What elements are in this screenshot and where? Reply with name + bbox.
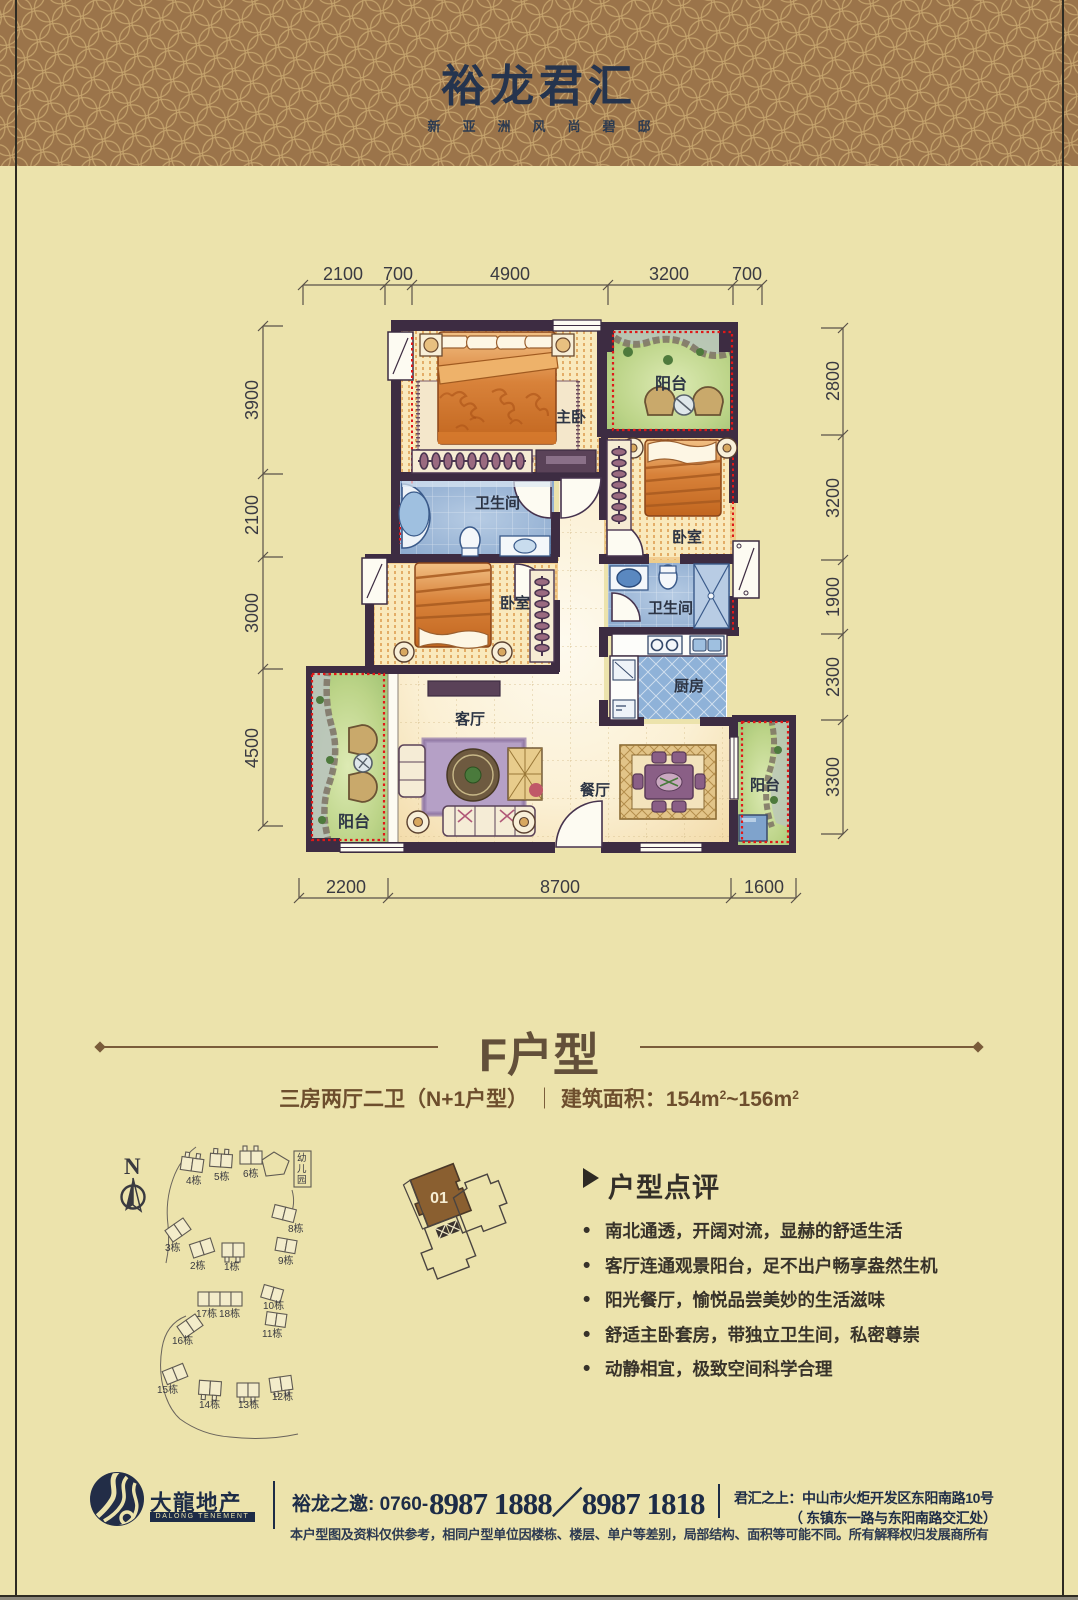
svg-text:6栋: 6栋 <box>243 1167 259 1180</box>
svg-text:12栋: 12栋 <box>272 1390 293 1403</box>
svg-text:2100: 2100 <box>242 495 262 535</box>
svg-text:卫生间: 卫生间 <box>648 599 693 617</box>
svg-text:阳台: 阳台 <box>338 812 370 831</box>
svg-text:2300: 2300 <box>823 657 843 697</box>
svg-text:5栋: 5栋 <box>214 1170 230 1183</box>
svg-text:9栋: 9栋 <box>278 1254 294 1267</box>
svg-text:700: 700 <box>383 264 413 284</box>
svg-text:16栋: 16栋 <box>172 1334 193 1347</box>
svg-text:卧室: 卧室 <box>500 594 530 612</box>
svg-text:儿: 儿 <box>297 1164 307 1175</box>
svg-text:厨房: 厨房 <box>674 677 704 695</box>
svg-text:01: 01 <box>430 1190 448 1207</box>
svg-text:4栋: 4栋 <box>186 1174 202 1187</box>
svg-text:幼: 幼 <box>297 1152 307 1164</box>
svg-text:8栋: 8栋 <box>288 1222 304 1235</box>
svg-text:3栋: 3栋 <box>165 1241 181 1254</box>
svg-text:2栋: 2栋 <box>190 1259 206 1272</box>
svg-text:4500: 4500 <box>242 728 262 768</box>
svg-text:1栋: 1栋 <box>224 1260 240 1273</box>
svg-text:1600: 1600 <box>744 877 784 897</box>
svg-text:园: 园 <box>297 1175 307 1186</box>
svg-text:14栋: 14栋 <box>199 1398 220 1411</box>
svg-text:3200: 3200 <box>823 478 843 518</box>
svg-text:1900: 1900 <box>823 577 843 617</box>
svg-text:主卧: 主卧 <box>556 408 586 426</box>
svg-text:2800: 2800 <box>823 361 843 401</box>
svg-text:3900: 3900 <box>242 380 262 420</box>
svg-text:餐厅: 餐厅 <box>580 781 610 799</box>
svg-text:3000: 3000 <box>242 593 262 633</box>
svg-text:卫生间: 卫生间 <box>475 494 520 512</box>
svg-text:8700: 8700 <box>540 877 580 897</box>
svg-text:N: N <box>124 1154 141 1179</box>
svg-text:2100: 2100 <box>323 264 363 284</box>
svg-text:卧室: 卧室 <box>672 528 702 546</box>
svg-text:3200: 3200 <box>649 264 689 284</box>
svg-text:3300: 3300 <box>823 757 843 797</box>
svg-text:10栋: 10栋 <box>263 1299 284 1312</box>
svg-text:4900: 4900 <box>490 264 530 284</box>
svg-text:阳台: 阳台 <box>655 374 687 393</box>
svg-text:18栋: 18栋 <box>219 1307 240 1320</box>
svg-text:客厅: 客厅 <box>454 710 485 728</box>
svg-text:2200: 2200 <box>326 877 366 897</box>
svg-text:13栋: 13栋 <box>238 1398 259 1411</box>
svg-text:700: 700 <box>732 264 762 284</box>
svg-text:阳台: 阳台 <box>750 776 780 794</box>
svg-text:15栋: 15栋 <box>157 1383 178 1396</box>
svg-text:17栋: 17栋 <box>196 1307 217 1320</box>
svg-text:11栋: 11栋 <box>262 1327 282 1340</box>
